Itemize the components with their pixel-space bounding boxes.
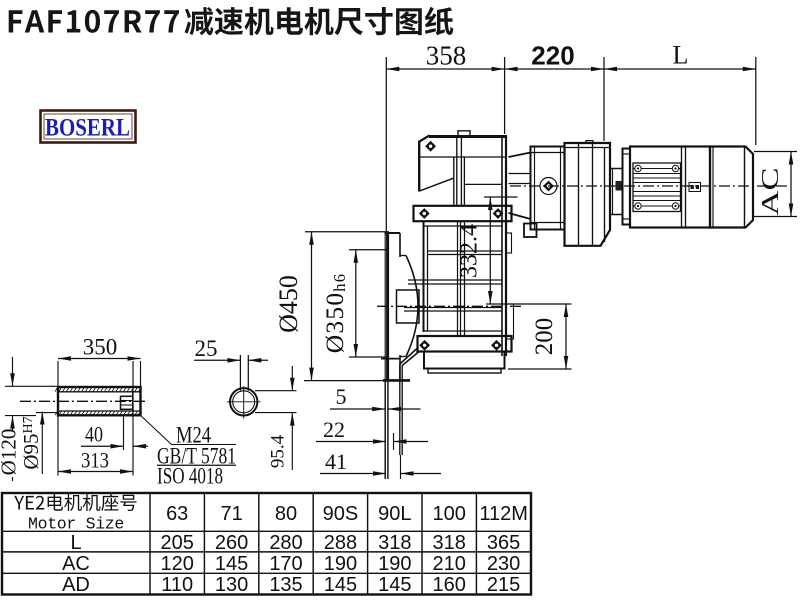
svg-text:160: 160 [433,574,466,596]
svg-text:25: 25 [195,336,218,361]
svg-text:L: L [673,41,689,70]
svg-text:22: 22 [323,417,345,442]
svg-text:170: 170 [269,553,302,575]
svg-text:318: 318 [433,532,466,554]
svg-text:313: 313 [81,448,109,473]
svg-text:190: 190 [378,553,411,575]
svg-text:71: 71 [220,503,242,525]
svg-text:100: 100 [433,503,466,525]
svg-text:145: 145 [215,553,248,575]
svg-text:90S: 90S [323,503,359,525]
svg-text:AC: AC [62,553,90,575]
svg-text:145: 145 [378,574,411,596]
svg-text:332.4: 332.4 [457,224,483,278]
svg-text:230: 230 [487,553,520,575]
svg-text:5: 5 [336,384,347,409]
svg-text:215: 215 [487,574,520,596]
svg-text:318: 318 [378,532,411,554]
svg-text:80: 80 [275,503,297,525]
svg-text:145: 145 [324,574,357,596]
svg-text:95.4: 95.4 [268,434,289,468]
svg-text:BOSERL: BOSERL [45,115,130,142]
svg-text:63: 63 [166,503,188,525]
svg-text:110: 110 [161,574,193,596]
svg-text:Motor Size: Motor Size [28,515,124,534]
svg-text:120: 120 [161,553,194,575]
svg-text:358: 358 [426,41,467,71]
svg-text:Ø450: Ø450 [274,275,303,333]
svg-text:130: 130 [215,574,248,596]
svg-text:350: 350 [83,335,118,360]
svg-text:200: 200 [531,318,558,356]
svg-text:135: 135 [269,574,302,596]
svg-text:260: 260 [215,532,248,554]
svg-text:AC: AC [758,168,784,216]
svg-text:220: 220 [531,41,574,71]
svg-text:40: 40 [85,422,103,447]
svg-text:L: L [70,532,81,554]
svg-text:Ø120: Ø120 [0,429,21,476]
svg-text:365: 365 [487,532,520,554]
svg-text:112M: 112M [479,503,528,525]
svg-text:ISO 4018: ISO 4018 [157,464,223,489]
svg-text:210: 210 [433,553,466,575]
svg-text:41: 41 [325,449,347,474]
svg-text:190: 190 [324,553,357,575]
svg-text:AD: AD [62,574,90,596]
svg-text:288: 288 [324,532,357,554]
svg-text:205: 205 [161,532,194,554]
svg-text:280: 280 [269,532,302,554]
svg-text:90L: 90L [378,503,411,525]
